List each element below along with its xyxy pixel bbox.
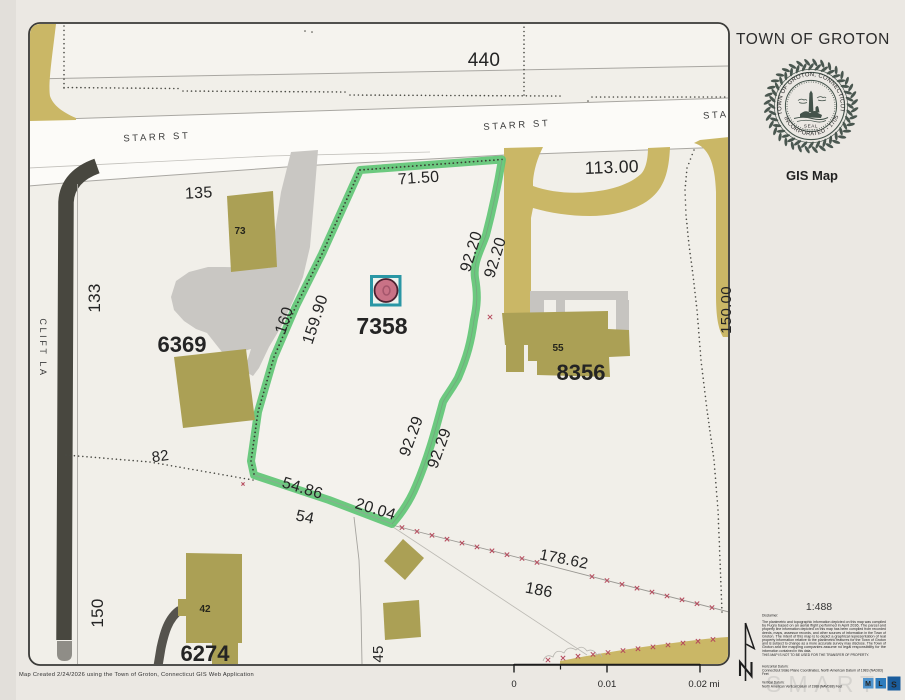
svg-text:North American Vertical Datum: North American Vertical Datum of 1988 (N… bbox=[762, 685, 842, 689]
svg-text:135: 135 bbox=[185, 184, 213, 202]
svg-text:0.02 mi: 0.02 mi bbox=[688, 679, 719, 690]
svg-text:THIS MAP IS NOT TO BE USED FOR: THIS MAP IS NOT TO BE USED FOR THE TRANS… bbox=[762, 653, 869, 657]
svg-text:TOWN OF GROTON: TOWN OF GROTON bbox=[736, 31, 890, 48]
svg-text:6274: 6274 bbox=[181, 641, 231, 666]
svg-text:82: 82 bbox=[151, 447, 170, 466]
svg-text:73: 73 bbox=[234, 226, 246, 237]
svg-text:113.00: 113.00 bbox=[584, 156, 639, 178]
svg-text:STA: STA bbox=[703, 109, 729, 122]
svg-text:45: 45 bbox=[370, 645, 387, 662]
svg-text:GIS Map: GIS Map bbox=[786, 168, 838, 183]
svg-text:1:488: 1:488 bbox=[806, 601, 832, 613]
svg-text:42: 42 bbox=[199, 604, 211, 615]
svg-text:150: 150 bbox=[88, 598, 107, 627]
svg-text:6369: 6369 bbox=[158, 332, 207, 357]
svg-text:Disclaimer:: Disclaimer: bbox=[762, 614, 778, 618]
svg-text:0.01: 0.01 bbox=[598, 679, 617, 690]
svg-text:Feet: Feet bbox=[762, 672, 769, 676]
svg-text:133: 133 bbox=[85, 283, 104, 312]
svg-text:SEAL: SEAL bbox=[804, 124, 818, 129]
svg-text:7358: 7358 bbox=[356, 313, 407, 339]
svg-text:Connecticut State Plane Coordi: Connecticut State Plane Coordinates, Nor… bbox=[762, 669, 883, 673]
svg-text:440: 440 bbox=[468, 50, 501, 71]
svg-text:M: M bbox=[865, 681, 871, 688]
svg-text:S: S bbox=[891, 680, 897, 690]
svg-text:150.00: 150.00 bbox=[718, 286, 735, 334]
svg-text:CLIFT LA: CLIFT LA bbox=[38, 318, 48, 377]
svg-text:0: 0 bbox=[511, 679, 516, 690]
svg-text:L: L bbox=[878, 681, 883, 688]
svg-text:Map Created 2/24/2026 using th: Map Created 2/24/2026 using the Town of … bbox=[19, 672, 254, 678]
svg-text:71.50: 71.50 bbox=[397, 169, 440, 189]
svg-text:55: 55 bbox=[552, 343, 564, 354]
svg-text:8356: 8356 bbox=[557, 360, 606, 385]
